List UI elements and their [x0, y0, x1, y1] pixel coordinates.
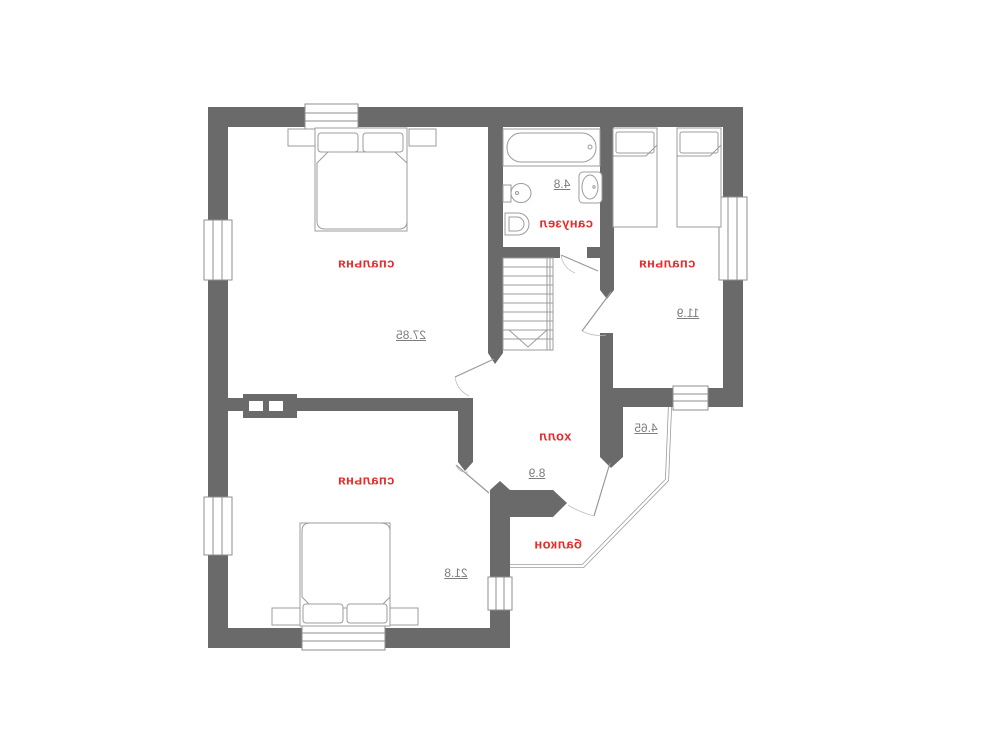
nightstand-icon: [409, 129, 436, 146]
window: [673, 386, 708, 410]
window: [204, 497, 232, 555]
window: [305, 104, 358, 130]
window: [488, 577, 512, 610]
floor-plan: спальня 27.85 санузел 4.8 спальня 11.9 х…: [0, 0, 1000, 750]
area-label-hall: 8.9: [529, 466, 546, 480]
room-label-bathroom: санузел: [539, 216, 593, 231]
vent-block: [243, 394, 297, 418]
room-label-bedroom-2: спальня: [639, 256, 696, 271]
area-label-bathroom: 4.8: [554, 177, 571, 191]
double-bed-icon: [300, 523, 390, 626]
door-swing: [456, 465, 489, 493]
sink-icon: [579, 172, 602, 203]
nightstand-icon: [288, 129, 315, 146]
room-label-bedroom-1: спальня: [338, 256, 395, 271]
window: [719, 197, 747, 280]
window: [302, 624, 385, 650]
staircase: [503, 258, 553, 350]
single-bed-icon: [677, 128, 721, 227]
single-bed-icon: [613, 128, 657, 227]
floor-plan-canvas: [0, 0, 1000, 750]
walls: [208, 107, 743, 648]
area-label-balcony: 4.65: [634, 421, 657, 435]
area-label-bedroom-1: 27.85: [396, 328, 426, 342]
nightstand-icon: [272, 608, 300, 625]
room-label-hall: холл: [539, 429, 572, 444]
window: [204, 220, 232, 280]
bidet-icon: [505, 213, 529, 235]
nightstand-icon: [390, 608, 418, 625]
door-swing: [455, 359, 494, 396]
door-swing: [568, 463, 610, 516]
bathtub-icon: [503, 129, 600, 166]
area-label-bedroom-2: 11.9: [677, 306, 699, 320]
room-label-bedroom-3: спальня: [338, 473, 395, 488]
door-swing: [582, 292, 611, 336]
area-label-bedroom-3: 21.8: [444, 566, 467, 580]
toilet-icon: [503, 184, 531, 203]
double-bed-icon: [315, 128, 407, 231]
room-label-balcony: балкон: [534, 537, 582, 552]
